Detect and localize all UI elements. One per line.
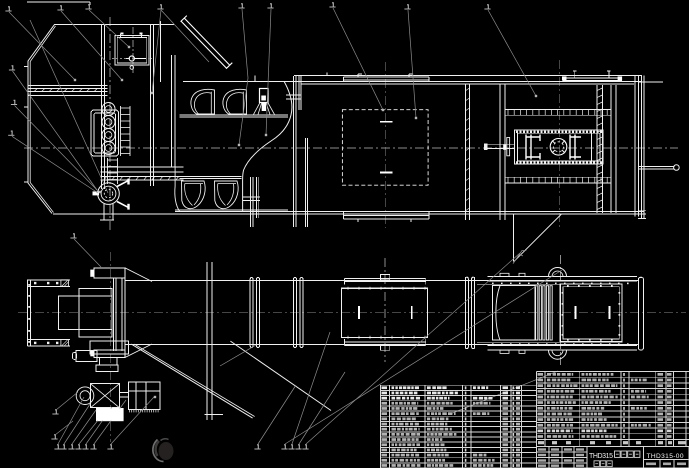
- svg-text:THD315-00: THD315-00: [647, 453, 684, 460]
- svg-text:THD315: THD315: [589, 453, 613, 460]
